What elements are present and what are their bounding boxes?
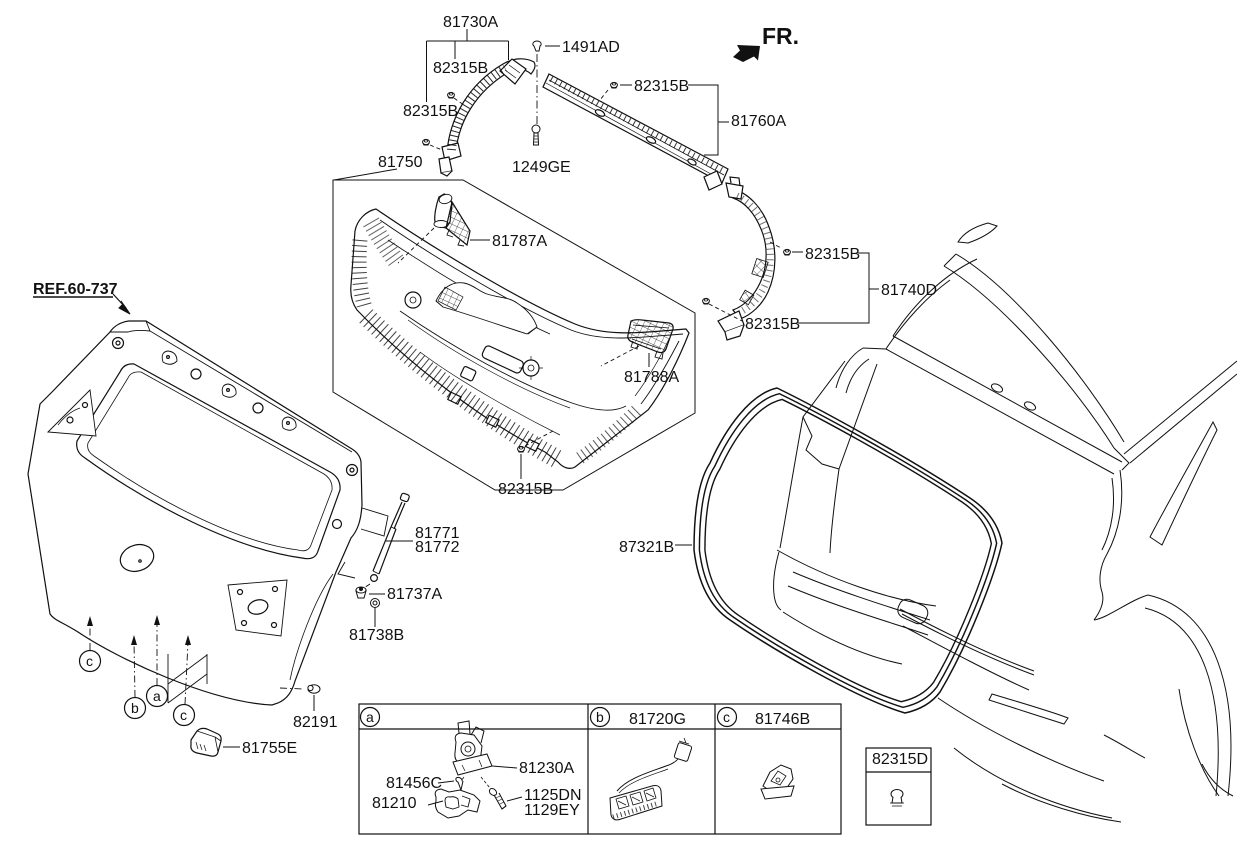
svg-text:b: b <box>131 700 139 716</box>
svg-text:81737A: 81737A <box>387 586 442 603</box>
svg-text:a: a <box>366 709 374 725</box>
svg-text:81746B: 81746B <box>755 711 810 728</box>
svg-text:87321B: 87321B <box>619 539 674 556</box>
svg-text:82315B: 82315B <box>745 316 800 333</box>
svg-text:b: b <box>596 709 604 725</box>
svg-text:REF.60-737: REF.60-737 <box>33 281 118 298</box>
svg-text:1249GE: 1249GE <box>512 159 571 176</box>
svg-text:c: c <box>180 707 187 723</box>
svg-text:81788A: 81788A <box>624 369 679 386</box>
svg-text:81740D: 81740D <box>881 282 937 299</box>
svg-text:82315B: 82315B <box>498 481 553 498</box>
svg-text:81787A: 81787A <box>492 233 547 250</box>
svg-text:82315B: 82315B <box>433 60 488 77</box>
svg-text:c: c <box>86 653 93 669</box>
svg-text:81738B: 81738B <box>349 627 404 644</box>
svg-text:81210: 81210 <box>372 795 417 812</box>
svg-text:82315B: 82315B <box>403 103 458 120</box>
svg-text:81772: 81772 <box>415 539 460 556</box>
svg-text:82315B: 82315B <box>634 78 689 95</box>
svg-text:81230A: 81230A <box>519 760 574 777</box>
svg-text:81730A: 81730A <box>443 14 498 31</box>
svg-text:1491AD: 1491AD <box>562 39 620 56</box>
svg-text:82315D: 82315D <box>872 751 928 768</box>
svg-text:81456C: 81456C <box>386 775 442 792</box>
svg-text:c: c <box>723 709 730 725</box>
svg-text:81755E: 81755E <box>242 740 297 757</box>
svg-text:a: a <box>153 688 161 704</box>
svg-text:FR.: FR. <box>762 23 799 49</box>
svg-text:1129EY: 1129EY <box>524 802 580 819</box>
svg-text:81760A: 81760A <box>731 113 786 130</box>
svg-text:81720G: 81720G <box>629 711 686 728</box>
svg-text:81750: 81750 <box>378 154 423 171</box>
svg-text:82315B: 82315B <box>805 246 860 263</box>
svg-text:82191: 82191 <box>293 714 338 731</box>
